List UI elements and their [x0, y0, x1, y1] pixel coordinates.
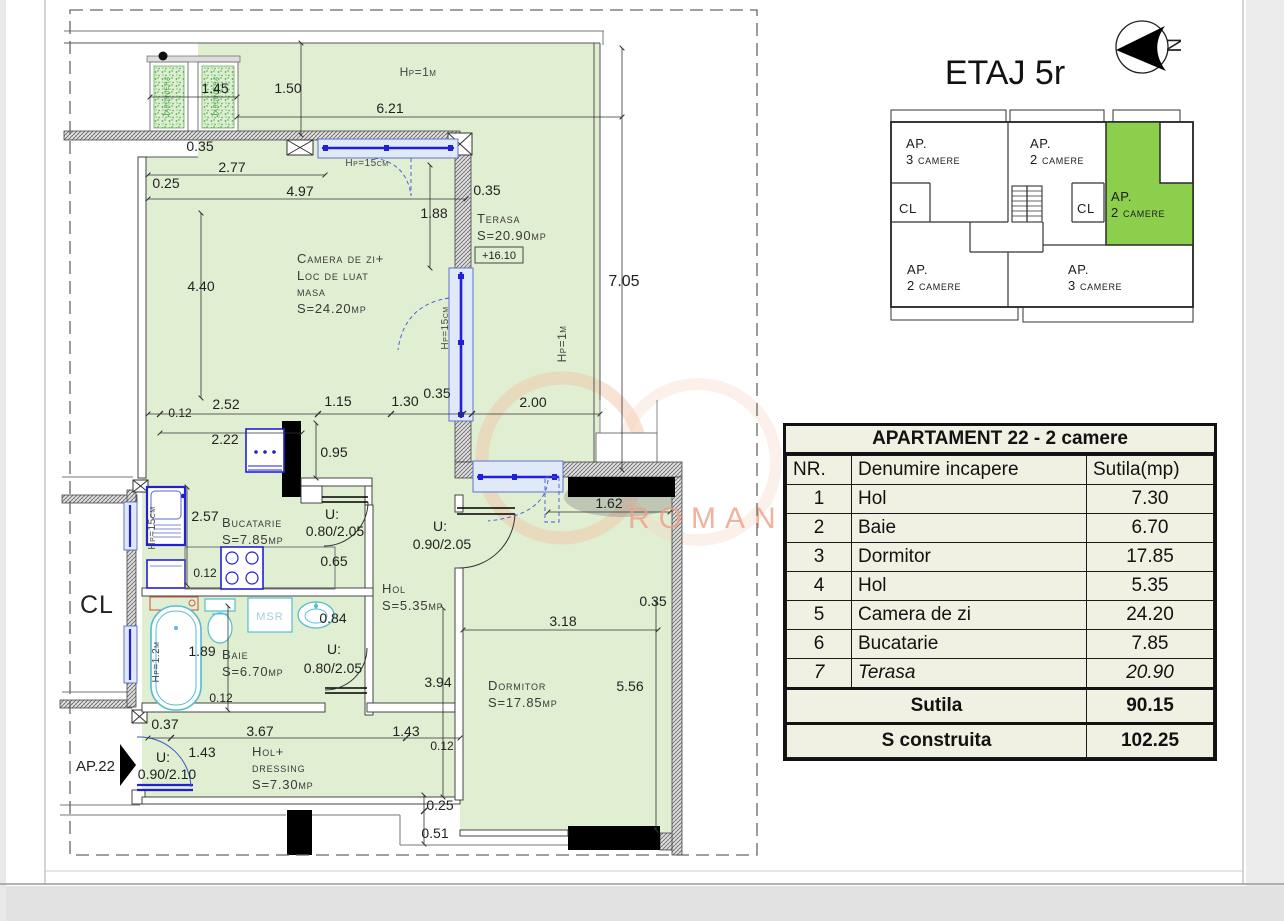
fridge: [147, 560, 185, 588]
row-area: 6.70: [1087, 514, 1214, 543]
keyplan-cl-left: CL: [899, 201, 917, 216]
door-label: U:: [433, 518, 447, 534]
door-label: 0.90/2.10: [138, 766, 197, 782]
dim-label: 0.12: [193, 566, 217, 580]
dim-label: 0.37: [151, 716, 178, 732]
room-label-hol: Hol: [382, 581, 406, 596]
door-label: U:: [327, 641, 341, 657]
dim-label: Hp=15cm: [440, 306, 451, 349]
dim-label: 1.15: [324, 393, 351, 409]
door-label: 0.80/2.05: [306, 523, 365, 539]
table-row: 6 Bucatarie 7.85: [787, 630, 1214, 659]
dim-label: 1.43: [188, 744, 215, 760]
row-nr: 6: [787, 630, 852, 659]
dim-label: 4.97: [286, 183, 313, 199]
dim-label: Hp=1.2m: [151, 642, 162, 683]
header-nr: NR.: [787, 456, 852, 485]
door-label: 0.90/2.05: [413, 536, 472, 552]
table-total-row: Sutila 90.15: [787, 689, 1214, 724]
floor-title: ETAJ 5r: [945, 54, 1065, 92]
dim-label: 1.50: [274, 80, 301, 96]
row-name: Terasa: [852, 659, 1087, 689]
room-area-hol: S=5.35mp: [382, 598, 443, 613]
keyplan-ap2-bottom: 2 camere: [907, 278, 961, 293]
dim-label: 0.35: [639, 593, 666, 609]
row-area: 24.20: [1087, 601, 1214, 630]
dim-label: 2.57: [191, 508, 218, 524]
table-row: 4 Hol 5.35: [787, 572, 1214, 601]
keyplan-ap3-bottom: AP.: [1068, 262, 1089, 277]
dim-label: 4.40: [187, 278, 214, 294]
room-area-bucatarie: S=7.85mp: [222, 532, 283, 547]
row-nr: 5: [787, 601, 852, 630]
dim-label: 2.00: [519, 394, 546, 410]
row-area: 7.85: [1087, 630, 1214, 659]
toilet: [205, 599, 235, 643]
keyplan-ap3-bottom: 3 camere: [1068, 278, 1122, 293]
compass-n: N: [1162, 38, 1184, 52]
heating-unit: [246, 429, 284, 472]
row-name: Bucatarie: [852, 630, 1087, 659]
dim-label: 7.05: [608, 273, 639, 290]
total-label: Sutila: [787, 689, 1087, 724]
dim-label: 6.21: [376, 100, 403, 116]
bottom-margin: [0, 886, 1284, 921]
left-margin: [0, 0, 6, 921]
room-label-living: Loc de luat: [297, 268, 369, 283]
room-area-dormitor: S=17.85mp: [488, 695, 558, 710]
dim-label: 0.12: [430, 739, 454, 753]
dim-label: 0.35: [423, 385, 450, 401]
table-title: APARTAMENT 22 - 2 camere: [786, 426, 1214, 455]
washing-machine-label: MSR: [256, 611, 283, 623]
dim-label: 0.25: [152, 175, 179, 191]
room-label-baie: Baie: [222, 647, 248, 662]
row-area: 17.85: [1087, 543, 1214, 572]
dim-label: Hp=15cm: [147, 506, 158, 549]
dim-label: 0.35: [186, 138, 213, 154]
keyplan-ap2-highlighted: 2 camere: [1111, 205, 1165, 220]
room-area-terasa: S=20.90mp: [477, 228, 547, 243]
room-label-hol-dressing: dressing: [252, 760, 305, 775]
row-area: 5.35: [1087, 572, 1214, 601]
keyplan-ap3-top: AP.: [906, 136, 927, 151]
keyplan-ap2-top: AP.: [1030, 136, 1051, 151]
row-name: Camera de zi: [852, 601, 1087, 630]
row-nr: 7: [787, 659, 852, 689]
table-header-row: NR. Denumire incapere Sutila(mp): [787, 456, 1214, 485]
dim-label: 0.84: [319, 610, 346, 626]
header-name: Denumire incapere: [852, 456, 1087, 485]
row-nr: 1: [787, 485, 852, 514]
dim-label: 1.89: [188, 643, 215, 659]
cl-label: CL: [80, 591, 114, 619]
row-area: 20.90: [1087, 659, 1214, 689]
side-window-2: [124, 626, 137, 683]
row-name: Hol: [852, 572, 1087, 601]
room-label-terasa: Terasa: [477, 211, 520, 226]
row-name: Hol: [852, 485, 1087, 514]
row-nr: 3: [787, 543, 852, 572]
table-row: 5 Camera de zi 24.20: [787, 601, 1214, 630]
dim-label: 3.67: [246, 723, 273, 739]
table-row: 1 Hol 7.30: [787, 485, 1214, 514]
row-nr: 4: [787, 572, 852, 601]
dim-label: 0.25: [426, 797, 453, 813]
dim-label: 0.12: [168, 406, 192, 420]
row-name: Baie: [852, 514, 1087, 543]
room-area-living: S=24.20mp: [297, 301, 367, 316]
row-name: Dormitor: [852, 543, 1087, 572]
dim-label: 0.95: [320, 444, 347, 460]
right-margin: [1246, 0, 1284, 921]
stove: [221, 547, 263, 589]
dim-label: 0.65: [320, 553, 347, 569]
header-area: Sutila(mp): [1087, 456, 1214, 485]
built-label: S construita: [787, 724, 1087, 758]
dim-label: Hp=1m: [555, 326, 569, 363]
keyplan-ap3-top: 3 camere: [906, 152, 960, 167]
dim-label: 2.52: [212, 396, 239, 412]
keyplan-ap2-top: 2 camere: [1030, 152, 1084, 167]
room-label-dormitor: Dormitor: [488, 678, 546, 693]
table-row: 3 Dormitor 17.85: [787, 543, 1214, 572]
dim-label: Hp=1m: [400, 65, 437, 79]
dim-label: 3.18: [549, 613, 576, 629]
keyplan-ap2-highlighted: AP.: [1111, 189, 1132, 204]
apartment-entry-label: AP.22: [76, 758, 115, 775]
dim-label: 5.56: [616, 678, 643, 694]
dim-label: 1.62: [595, 495, 622, 511]
row-nr: 2: [787, 514, 852, 543]
door-label: U:: [156, 749, 170, 765]
stairs-icon: [1012, 186, 1042, 222]
dim-label: 2.22: [211, 431, 238, 447]
room-area-hol-dressing: S=7.30mp: [252, 777, 313, 792]
room-areas: NR. Denumire incapere Sutila(mp) 1 Hol 7…: [786, 455, 1214, 758]
room-label-hol-dressing: Hol+: [252, 744, 284, 759]
keyplan-cl-right: CL: [1077, 201, 1095, 216]
dim-label: 1.88: [420, 205, 447, 221]
room-label-living: Camera de zi+: [297, 251, 384, 266]
area-table: APARTAMENT 22 - 2 camere NR. Denumire in…: [783, 423, 1217, 761]
room-label-living: masa: [297, 284, 326, 299]
row-area: 7.30: [1087, 485, 1214, 514]
table-row: 7 Terasa 20.90: [787, 659, 1214, 689]
dim-label: 2.77: [218, 159, 245, 175]
dim-label: 1.45: [201, 80, 228, 96]
survey-dot: [159, 52, 168, 61]
door-label: 0.80/2.05: [304, 660, 363, 676]
table-row: 2 Baie 6.70: [787, 514, 1214, 543]
door-label: U:: [325, 506, 339, 522]
dim-label: 3.94: [424, 674, 451, 690]
built-value: 102.25: [1087, 724, 1214, 758]
side-window-1: [124, 502, 137, 550]
dim-label: 0.51: [421, 825, 448, 841]
dim-label: Hp=15cm: [345, 158, 388, 169]
room-label-bucatarie: Bucatarie: [222, 515, 282, 530]
floorplan-sheet: { "header": { "floor_title": "ETAJ 5r", …: [0, 0, 1284, 921]
dim-label: 1.43: [392, 723, 419, 739]
keyplan-ap2-bottom: AP.: [907, 262, 928, 277]
room-area-baie: S=6.70mp: [222, 664, 283, 679]
dim-label: 0.35: [473, 182, 500, 198]
total-value: 90.15: [1087, 689, 1214, 724]
dim-label: 0.12: [209, 691, 233, 705]
dim-label: 1.30: [391, 393, 418, 409]
terrace-level: +16.10: [482, 250, 516, 262]
table-built-row: S construita 102.25: [787, 724, 1214, 758]
